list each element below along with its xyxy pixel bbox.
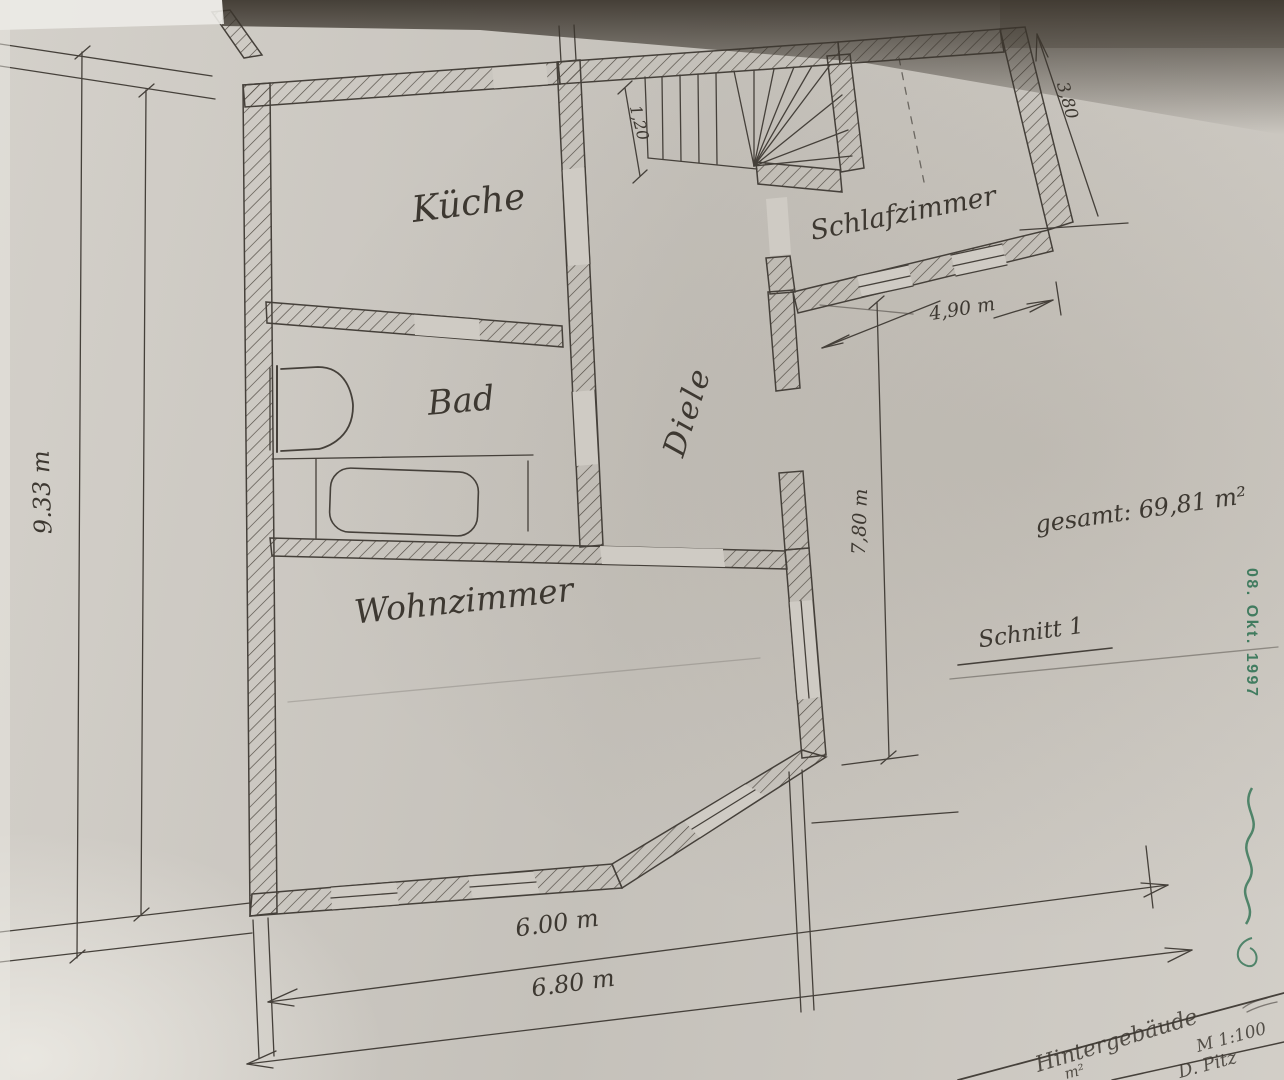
wall-stair-right	[827, 54, 864, 172]
scan-artifacts	[0, 0, 1284, 1080]
date-stamp-group: 08. Okt. 1997	[1238, 568, 1260, 966]
room-label-kueche: Küche	[409, 176, 528, 231]
left-edge-light	[0, 0, 10, 1080]
wall-schlaf-left-lower	[766, 256, 795, 294]
dim-bottom-outer: 6.80 m	[530, 964, 617, 1003]
date-stamp: 08. Okt. 1997	[1243, 568, 1260, 698]
dim-right-height: 7,80 m	[848, 488, 872, 555]
wall-left	[243, 83, 277, 916]
dim-bottom-inner: 6.00 m	[514, 904, 601, 943]
room-label-wohnzimmer: Wohnzimmer	[352, 569, 577, 631]
signature-paraph	[1238, 938, 1257, 966]
dim-left-height: 9.33 m	[27, 450, 58, 535]
section-label: Schnitt 1	[977, 613, 1086, 654]
dim-stair-width: 1,20	[626, 103, 653, 142]
toilet-icon	[281, 367, 353, 451]
total-area-note: gesamt: 69,81 m²	[1033, 481, 1248, 538]
door-leaf	[766, 197, 791, 256]
top-right-shadow	[1000, 0, 1284, 48]
signature-green	[1245, 788, 1254, 924]
walls	[212, 10, 1073, 916]
illegible-scribble	[1243, 998, 1277, 1012]
wall-diele-right-upper	[768, 290, 800, 391]
paper-edge-top-left	[0, 0, 224, 30]
wall-diele-right-lower	[779, 471, 809, 550]
wall-kueche-right	[557, 60, 603, 547]
room-label-diele: Diele	[656, 363, 719, 462]
titleblock-building: Hintergebäude	[1031, 1005, 1200, 1078]
floorplan-scan: Küche Bad Diele Schlafzimmer Wohnzimmer …	[0, 0, 1284, 1080]
room-label-bad: Bad	[425, 378, 496, 424]
bathtub-icon	[329, 467, 479, 536]
wall-stair-bottom	[756, 162, 842, 192]
dim-schlafzimmer-width: 4,90 m	[927, 293, 997, 325]
floorplan-drawing: Küche Bad Diele Schlafzimmer Wohnzimmer …	[0, 0, 1284, 1080]
paper-creases	[288, 658, 760, 702]
title-block: Hintergebäude M 1:100 D. Pitz m²	[958, 993, 1284, 1080]
dashed-line	[899, 58, 924, 182]
